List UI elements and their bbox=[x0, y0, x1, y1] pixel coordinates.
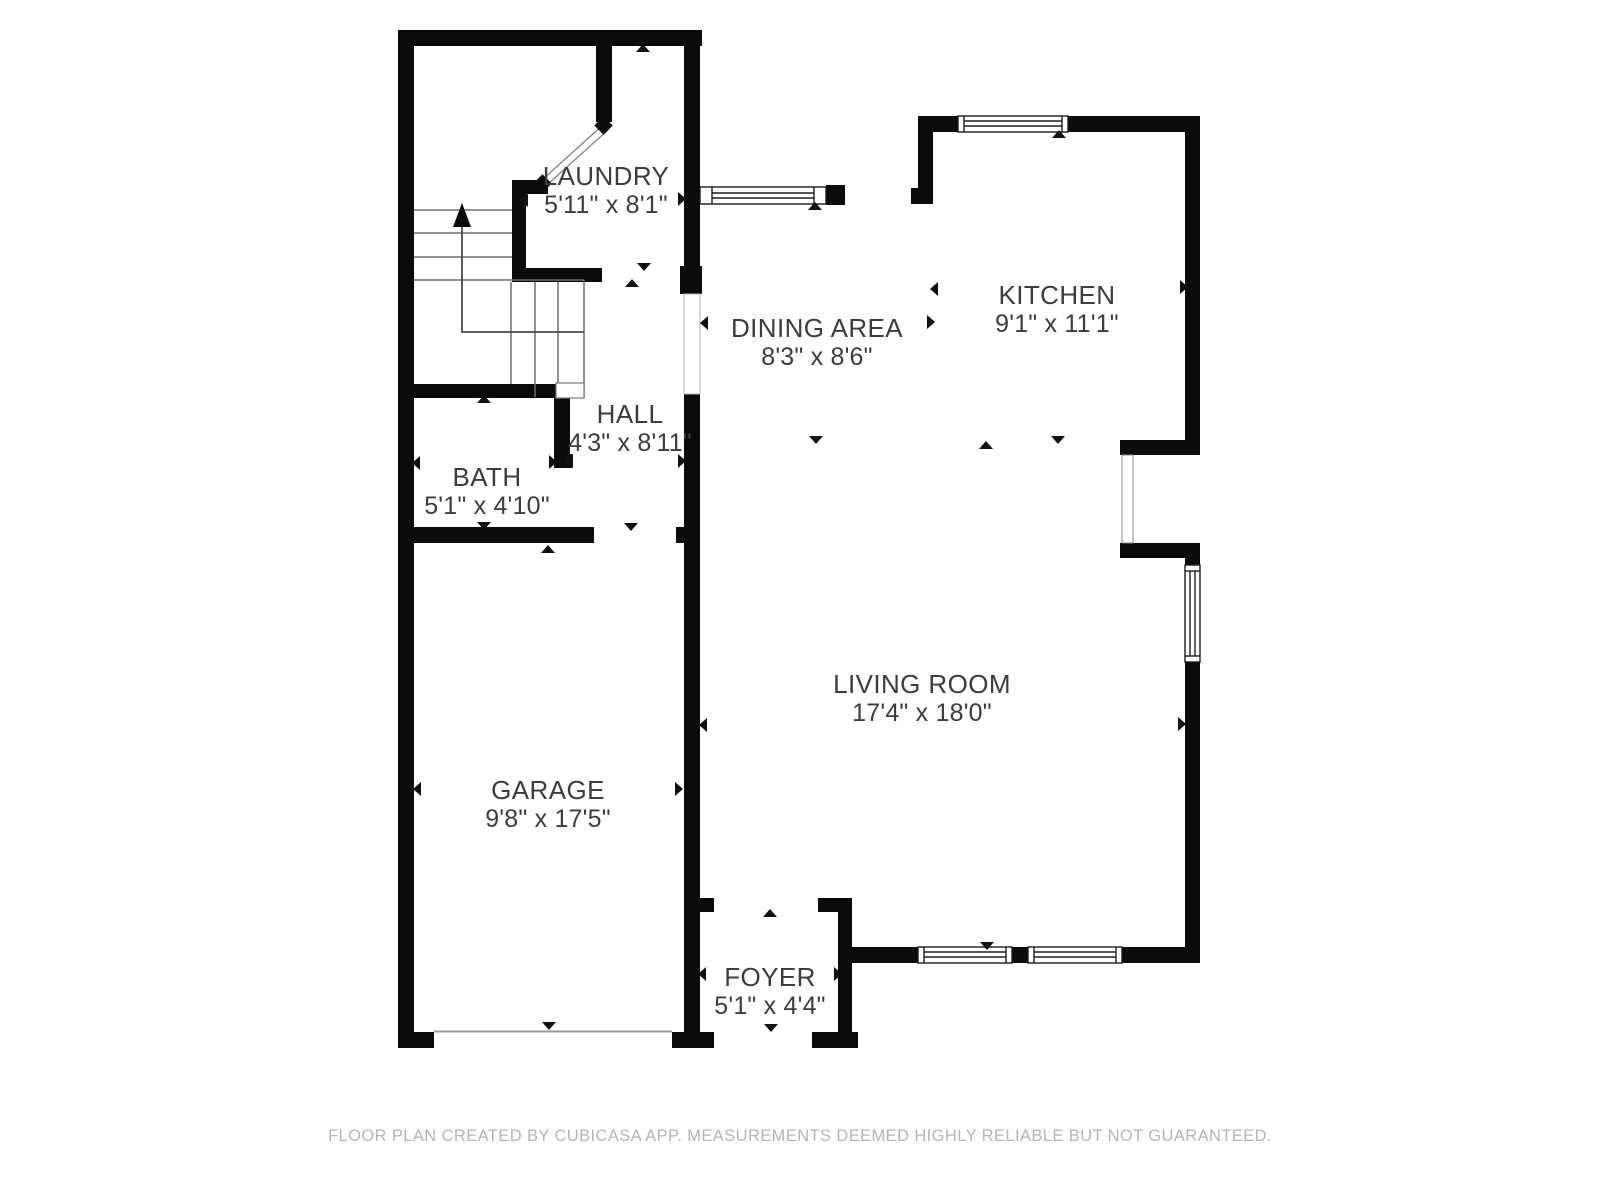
arrow-living-up bbox=[979, 441, 993, 449]
window-kitchen bbox=[958, 116, 1068, 132]
arrow-kitchen-left bbox=[930, 282, 938, 296]
room-dimensions: 9'1" x 11'1" bbox=[995, 310, 1119, 339]
wall-kitchen-left-notch bbox=[911, 188, 933, 204]
arrow-kitchen-down bbox=[1051, 436, 1065, 444]
wall-top bbox=[398, 30, 702, 46]
room-dimensions: 5'1" x 4'10" bbox=[424, 492, 550, 521]
room-name: BATH bbox=[424, 463, 550, 492]
arrow-garage-up bbox=[541, 545, 555, 553]
room-dimensions: 4'3" x 8'11" bbox=[568, 429, 692, 458]
arrow-living-right bbox=[1178, 717, 1186, 731]
arrow-garage-down bbox=[542, 1022, 556, 1030]
room-dimensions: 9'8" x 17'5" bbox=[485, 805, 611, 834]
wall-nook-top bbox=[1120, 440, 1200, 455]
wall-right-upper bbox=[1185, 116, 1200, 442]
arrow-foyer-down bbox=[764, 1024, 778, 1032]
window-dining bbox=[700, 187, 826, 204]
wall-post-laundry bbox=[680, 266, 702, 294]
arrow-hall-up bbox=[625, 279, 639, 287]
openings bbox=[434, 116, 1133, 1031]
wall-laundry-right bbox=[684, 46, 700, 272]
room-label-foyer: FOYER 5'1" x 4'4" bbox=[714, 963, 826, 1021]
window-living-right bbox=[1185, 565, 1200, 662]
room-name: GARAGE bbox=[485, 776, 611, 805]
wall-bottom-seg3 bbox=[1122, 947, 1200, 963]
room-name: HALL bbox=[568, 400, 692, 429]
footer-disclaimer: FLOOR PLAN CREATED BY CUBICASA APP. MEAS… bbox=[0, 1124, 1600, 1148]
wall-post-foyer-left bbox=[672, 1032, 714, 1048]
wall-hall-notch bbox=[676, 527, 684, 543]
room-dimensions: 5'1" x 4'4" bbox=[714, 992, 826, 1021]
room-dimensions: 17'4" x 18'0" bbox=[833, 699, 1011, 728]
room-dimensions: 5'11" x 8'1" bbox=[543, 191, 670, 220]
wall-stair-bottom bbox=[398, 384, 558, 398]
wall-bottom-mullion bbox=[1012, 947, 1028, 963]
arrow-dining-right bbox=[927, 315, 935, 329]
room-dimensions: 8'3" x 8'6" bbox=[731, 343, 903, 372]
arrow-garage-right bbox=[675, 782, 683, 796]
room-label-bath: BATH 5'1" x 4'10" bbox=[424, 463, 550, 521]
window-living-bottom-right bbox=[1028, 947, 1122, 963]
room-label-laundry: LAUNDRY 5'11" x 8'1" bbox=[543, 162, 670, 220]
stairs bbox=[414, 203, 584, 398]
room-label-garage: GARAGE 9'8" x 17'5" bbox=[485, 776, 611, 834]
wall-foyer-stub bbox=[700, 898, 714, 912]
room-name: KITCHEN bbox=[995, 281, 1119, 310]
room-label-living: LIVING ROOM 17'4" x 18'0" bbox=[833, 670, 1011, 728]
room-name: FOYER bbox=[714, 963, 826, 992]
wall-kitchen-top-right bbox=[1066, 116, 1200, 132]
wall-bath-bottom bbox=[398, 527, 594, 543]
stair-tread-box bbox=[556, 383, 584, 398]
arrow-hall-down bbox=[624, 523, 638, 531]
room-name: DINING AREA bbox=[731, 314, 903, 343]
room-name: LAUNDRY bbox=[543, 162, 670, 191]
wall-laundry-l-vert bbox=[512, 180, 526, 282]
opening-hall-dining bbox=[684, 294, 700, 394]
wall-bottom-seg1 bbox=[852, 947, 918, 963]
wall-laundry-stub bbox=[596, 46, 612, 122]
floor-plan-canvas: LAUNDRY 5'11" x 8'1" DINING AREA 8'3" x … bbox=[0, 0, 1600, 1200]
wall-right-lower bbox=[1185, 660, 1200, 949]
wall-kitchen-left bbox=[918, 116, 933, 190]
opening-nook-left bbox=[1122, 455, 1133, 543]
room-label-hall: HALL 4'3" x 8'11" bbox=[568, 400, 692, 458]
wall-center-vertical bbox=[684, 394, 700, 1034]
arrow-garage-left bbox=[413, 782, 421, 796]
arrow-foyer-up bbox=[763, 909, 777, 917]
wall-post-dining-window bbox=[826, 185, 845, 205]
walls bbox=[398, 30, 1200, 1048]
arrow-living-left bbox=[699, 718, 707, 732]
room-label-kitchen: KITCHEN 9'1" x 11'1" bbox=[995, 281, 1119, 339]
room-name: LIVING ROOM bbox=[833, 670, 1011, 699]
wall-post-garage-left bbox=[398, 1032, 434, 1048]
arrow-dining-down bbox=[809, 436, 823, 444]
arrow-dining-left bbox=[700, 316, 708, 330]
room-label-dining: DINING AREA 8'3" x 8'6" bbox=[731, 314, 903, 372]
arrow-laundry-down bbox=[637, 263, 651, 271]
window-living-bottom-left bbox=[918, 947, 1012, 963]
wall-post-foyer-right bbox=[812, 1032, 858, 1048]
